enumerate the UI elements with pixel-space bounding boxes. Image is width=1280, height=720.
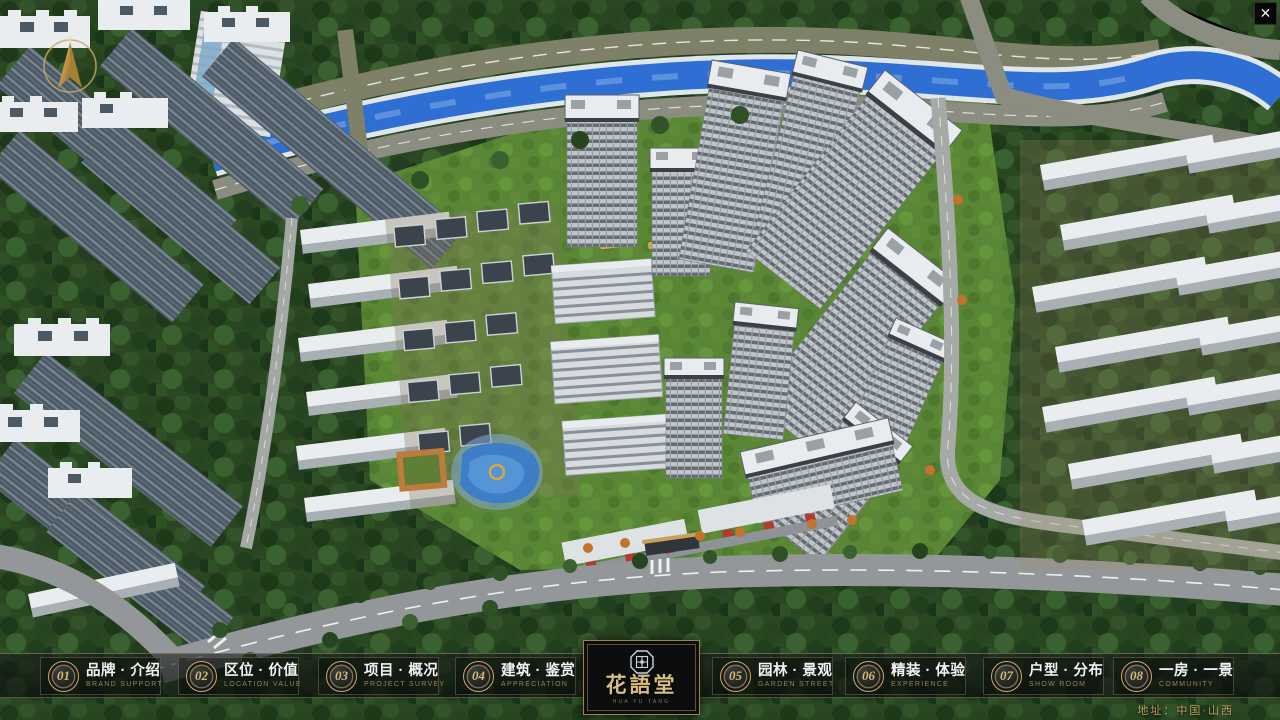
nav-badge-01: 01 (48, 661, 79, 692)
nav-item-architecture[interactable]: 04 建筑 · 鉴赏 APPRECIATION (455, 657, 576, 695)
nav-item-interior[interactable]: 06 精装 · 体验 EXPERIENCE (845, 657, 966, 695)
nav-item-garden[interactable]: 05 园林 · 景观 GARDEN STREET (712, 657, 833, 695)
nav-label-en: SHOW ROOM (1029, 681, 1103, 688)
nav-badge-06: 06 (853, 661, 884, 692)
nav-item-location[interactable]: 02 区位 · 价值 LOCATION VALUE (178, 657, 299, 695)
nav-label-en: COMMUNITY (1159, 681, 1233, 688)
nav-label-en: BRAND SUPPORT (86, 681, 160, 688)
garden-pavilion (396, 448, 447, 492)
nav-label-zh: 园林 · 景观 (758, 664, 832, 680)
project-logo[interactable]: 花語堂 HUA YU TANG (583, 640, 700, 715)
aerial-map-viewport[interactable] (0, 0, 1280, 720)
nav-item-floorplan[interactable]: 07 户型 · 分布 SHOW ROOM (983, 657, 1104, 695)
nav-label-zh: 品牌 · 介绍 (86, 664, 160, 680)
nav-badge-03: 03 (326, 661, 357, 692)
nav-label-zh: 建筑 · 鉴赏 (501, 664, 575, 680)
nav-item-views[interactable]: 08 一房 · 一景 COMMUNITY (1113, 657, 1234, 695)
nav-badge-07: 07 (991, 661, 1022, 692)
midrise-blocks (545, 259, 669, 476)
nav-badge-08: 08 (1121, 661, 1152, 692)
bottom-navbar: 01 品牌 · 介绍 BRAND SUPPORT 02 区位 · 价值 LOCA… (0, 653, 1280, 698)
nav-badge-02: 02 (186, 661, 217, 692)
nav-label-en: PROJECT SURVEY (364, 681, 438, 688)
pond (451, 434, 543, 510)
nav-label-zh: 精装 · 体验 (891, 664, 965, 680)
close-button[interactable]: ✕ (1254, 2, 1277, 25)
nav-label-en: LOCATION VALUE (224, 681, 298, 688)
logo-title: 花語堂 (606, 675, 678, 696)
east-lowrise-rows (1020, 118, 1280, 570)
nav-badge-04: 04 (463, 661, 494, 692)
logo-subtitle: HUA YU TANG (613, 699, 671, 705)
nav-label-zh: 一房 · 一景 (1159, 664, 1233, 680)
nav-label-zh: 户型 · 分布 (1029, 664, 1103, 680)
nav-item-brand[interactable]: 01 品牌 · 介绍 BRAND SUPPORT (40, 657, 161, 695)
nav-label-en: APPRECIATION (501, 681, 575, 688)
nav-label-zh: 项目 · 概况 (364, 664, 438, 680)
nav-label-en: EXPERIENCE (891, 681, 965, 688)
project-address: 地址：中国·山西 (1137, 702, 1234, 718)
presentation-window: ✕ 01 品牌 · 介绍 BRAND SUPPORT 02 区位 · 价值 LO… (0, 0, 1280, 720)
nav-badge-05: 05 (720, 661, 751, 692)
seal-icon (630, 650, 654, 674)
nav-item-project[interactable]: 03 项目 · 概况 PROJECT SURVEY (318, 657, 439, 695)
nav-label-en: GARDEN STREET (758, 681, 832, 688)
nav-label-zh: 区位 · 价值 (224, 664, 298, 680)
